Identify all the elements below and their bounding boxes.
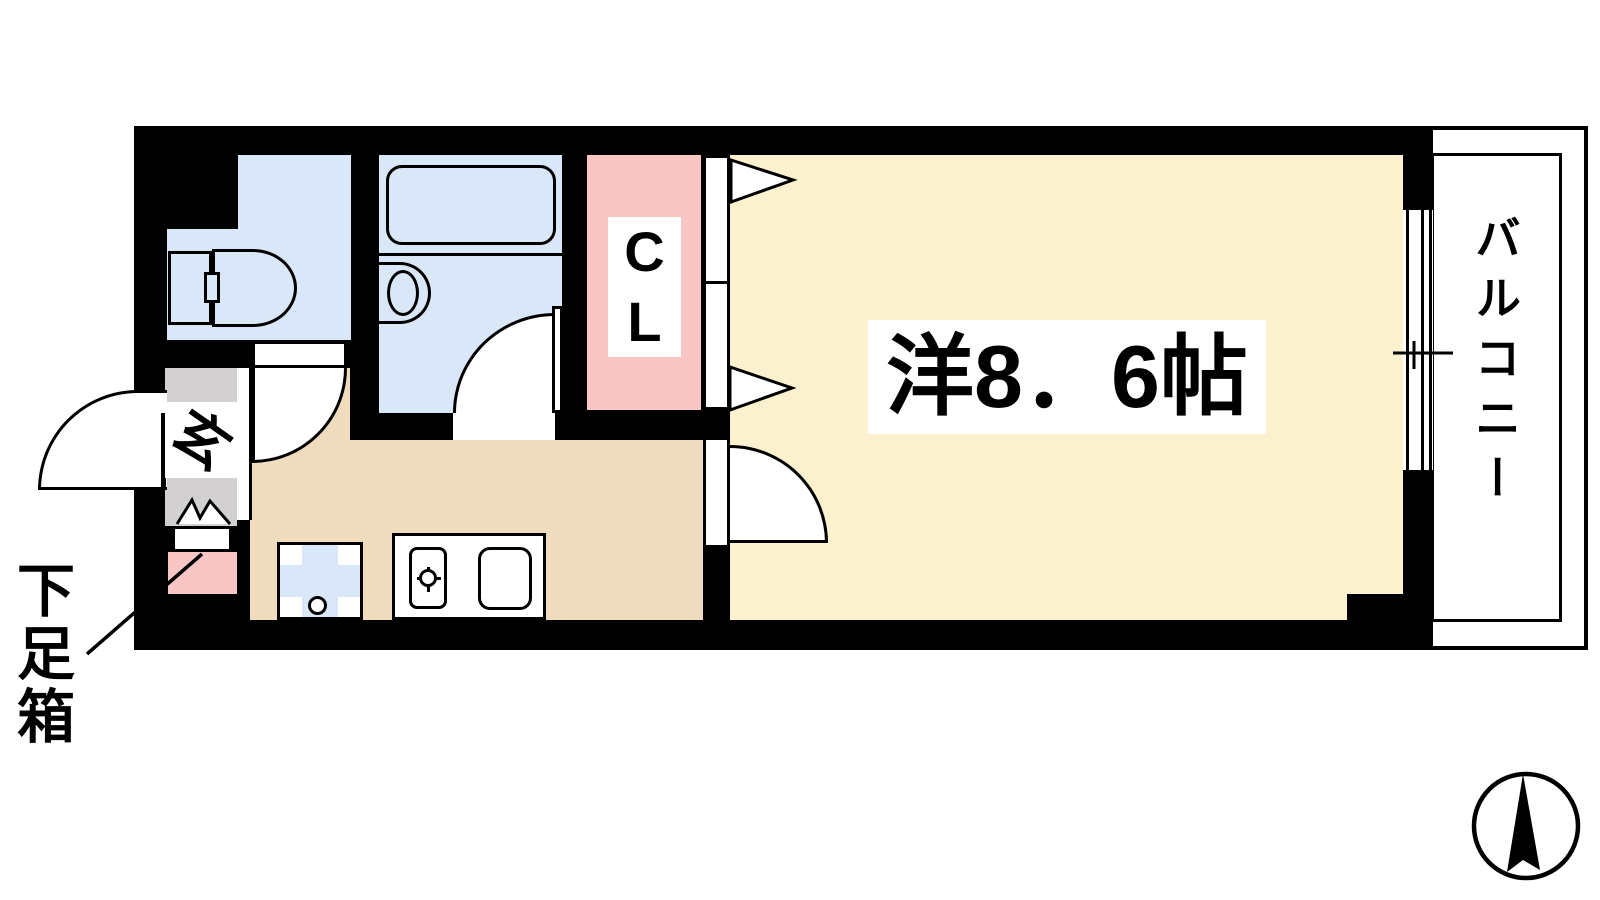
bath-divider-line xyxy=(379,253,562,256)
washer-pan-corner xyxy=(280,597,302,617)
bath-door-opening xyxy=(453,413,555,440)
washer-pan-corner xyxy=(280,545,302,565)
bath-door-leaf xyxy=(552,306,563,413)
closet-label-box: C L xyxy=(608,217,681,357)
washer-pan-corner xyxy=(338,545,360,565)
washer-pan-corner xyxy=(338,597,360,617)
kitchen-door-leaf xyxy=(703,437,730,548)
shoe-box-label: 下足箱 xyxy=(16,560,82,780)
entrance-label: 玄 xyxy=(162,401,240,479)
closet-label-l: L xyxy=(627,287,661,357)
toilet-bowl-icon xyxy=(212,249,297,327)
closet-door-divider xyxy=(703,281,730,284)
stove-burner-icon xyxy=(419,569,437,587)
main-room-corner-pillar xyxy=(1347,594,1403,620)
main-room-label-box: 洋8．6帖 xyxy=(868,320,1266,434)
main-room-label: 洋8．6帖 xyxy=(886,333,1248,421)
window-sash-line xyxy=(1421,210,1424,470)
bathtub-icon xyxy=(386,165,556,245)
entrance-step-box xyxy=(173,527,231,551)
toilet-corner-pillar xyxy=(167,155,238,229)
balcony-label: バルコニー xyxy=(1466,214,1528,554)
washbasin-bowl-icon xyxy=(387,270,419,316)
window-sash-line xyxy=(1429,210,1432,470)
entrance-label-box: 玄 xyxy=(165,402,237,478)
toilet-door-leaf xyxy=(252,341,347,368)
washer-drain-icon xyxy=(308,596,327,615)
closet-label-c: C xyxy=(624,217,664,287)
compass-icon xyxy=(1474,774,1578,878)
window-sash-line xyxy=(1406,210,1409,470)
hallway-step xyxy=(236,368,250,520)
front-door-swing xyxy=(38,390,138,490)
floor-plan: 洋8．6帖 C L 玄 バルコニー 下足箱 xyxy=(0,0,1600,900)
shoe-box xyxy=(168,552,237,594)
toilet-flush-handle-icon xyxy=(204,272,220,303)
kitchen-sink-icon xyxy=(478,547,532,610)
